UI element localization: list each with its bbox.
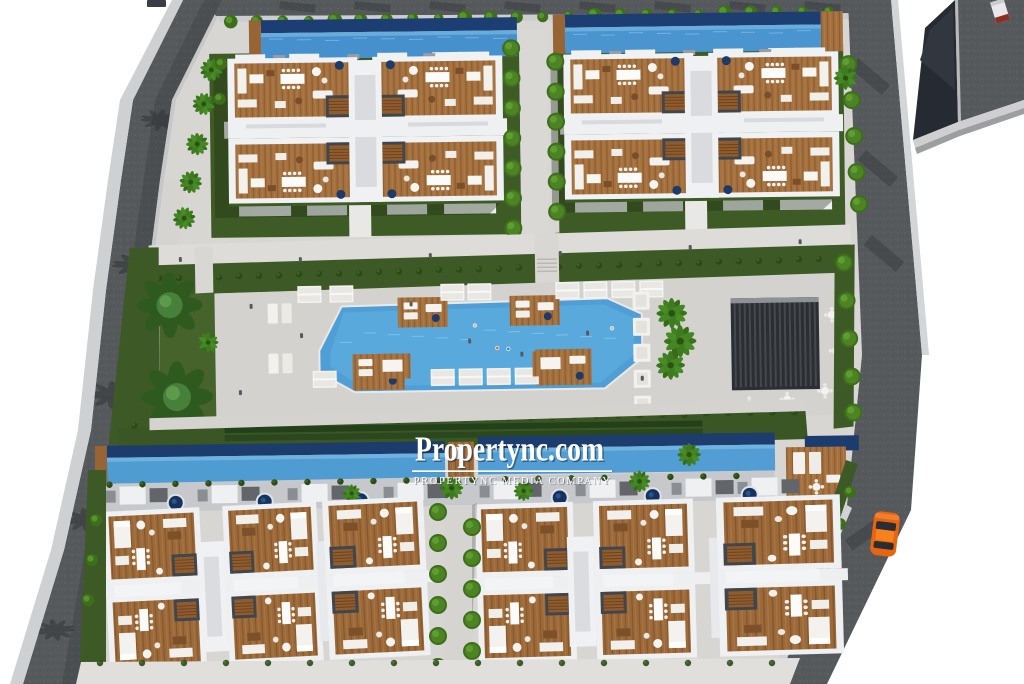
svg-text:PROPERTYNC MEDIA COMPANY: PROPERTYNC MEDIA COMPANY [414, 476, 612, 487]
svg-text:Propertync.com: Propertync.com [415, 430, 604, 469]
